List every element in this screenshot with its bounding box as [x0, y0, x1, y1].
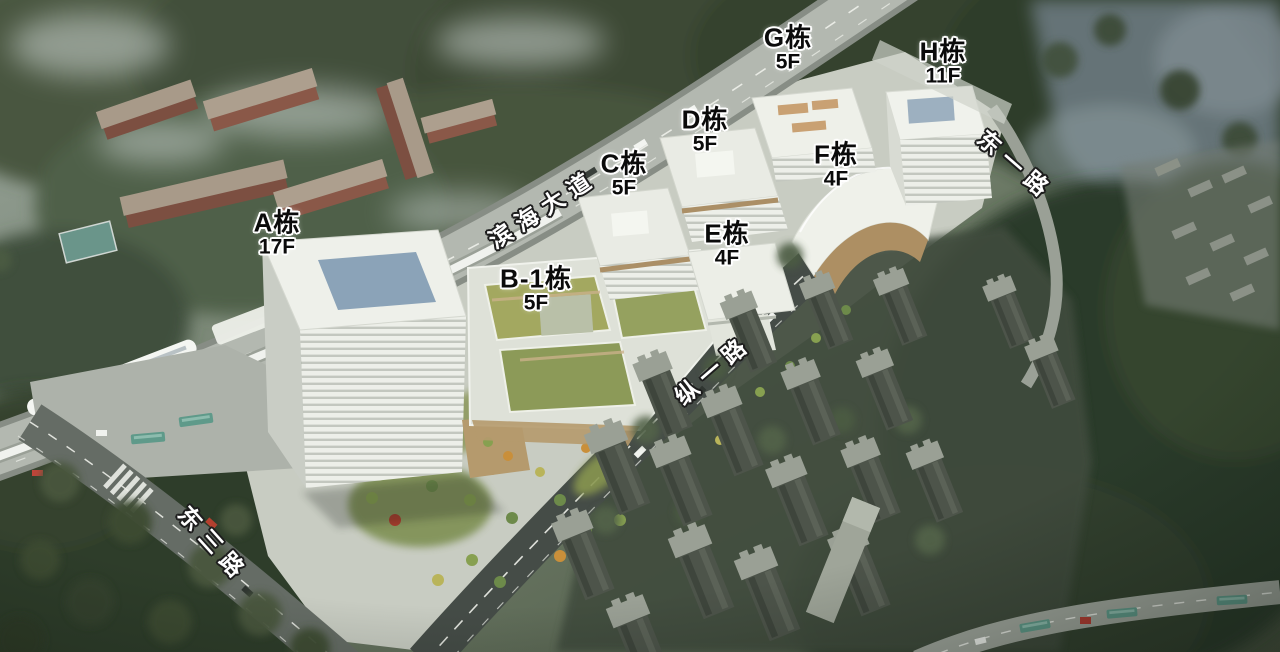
building-floors: 5F [682, 134, 729, 156]
building-name: H栋 [920, 39, 967, 66]
aerial-rendering [0, 0, 1280, 652]
building-label-a: A栋 17F [254, 210, 301, 259]
building-floors: 4F [814, 169, 858, 191]
building-floors: 11F [920, 66, 967, 88]
building-name: D栋 [682, 107, 729, 134]
building-name: G栋 [764, 25, 812, 52]
building-name: F栋 [814, 142, 858, 169]
building-floors: 4F [704, 248, 749, 270]
building-name: C栋 [601, 151, 648, 178]
building-label-g: G栋 5F [764, 25, 812, 74]
building-name: E栋 [704, 221, 749, 248]
building-label-h: H栋 11F [920, 39, 967, 88]
building-name: B-1栋 [500, 266, 572, 293]
building-floors: 17F [254, 237, 301, 259]
building-floors: 5F [500, 293, 572, 315]
building-label-d: D栋 5F [682, 107, 729, 156]
building-label-b1: B-1栋 5F [500, 266, 572, 315]
building-floors: 5F [601, 178, 648, 200]
building-name: A栋 [254, 210, 301, 237]
building-label-e: E栋 4F [704, 221, 749, 270]
building-floors: 5F [764, 52, 812, 74]
building-label-f: F栋 4F [814, 142, 858, 191]
building-label-c: C栋 5F [601, 151, 648, 200]
aerial-site-plan: A栋 17F B-1栋 5F C栋 5F D栋 5F E栋 4F F栋 4F G… [0, 0, 1280, 652]
